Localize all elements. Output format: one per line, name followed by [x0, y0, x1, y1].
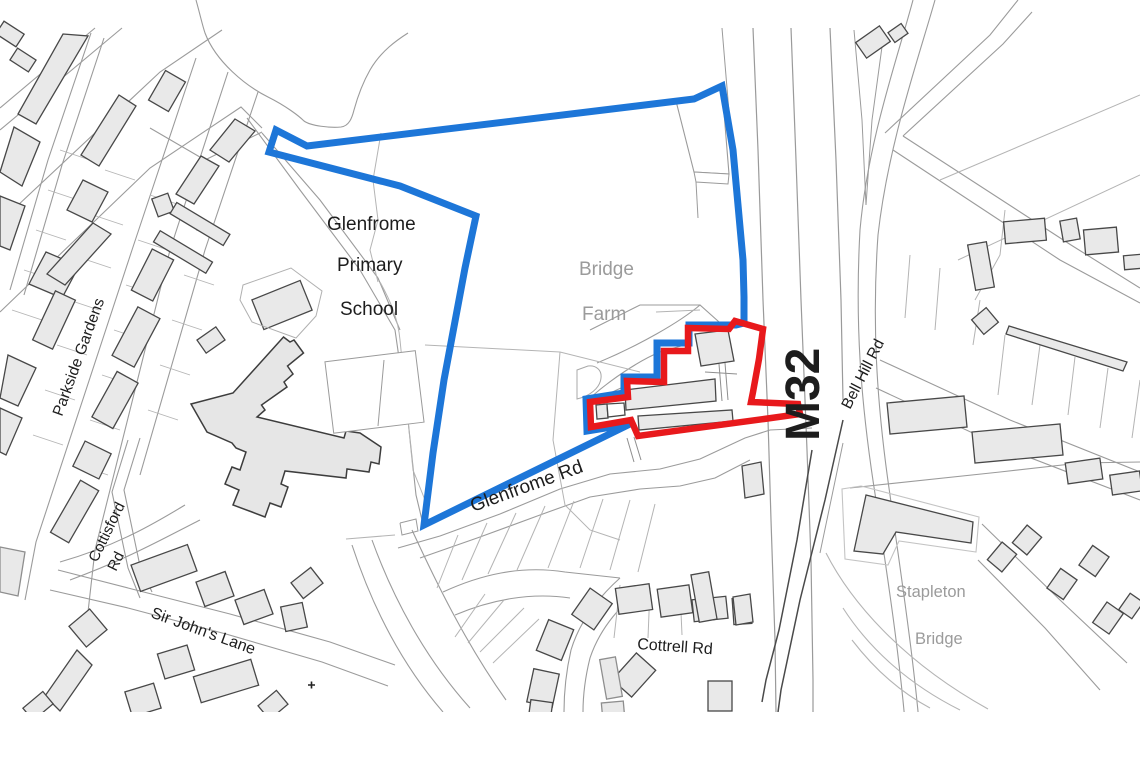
svg-text:M32: M32	[777, 348, 830, 441]
svg-text:Glenfrome: Glenfrome	[327, 214, 416, 235]
svg-text:Farm: Farm	[582, 304, 626, 325]
svg-text:Primary: Primary	[337, 255, 403, 276]
svg-text:Bridge: Bridge	[579, 259, 634, 280]
svg-text:Bridge: Bridge	[915, 630, 963, 648]
svg-text:Stapleton: Stapleton	[896, 583, 966, 601]
svg-text:School: School	[340, 299, 398, 320]
